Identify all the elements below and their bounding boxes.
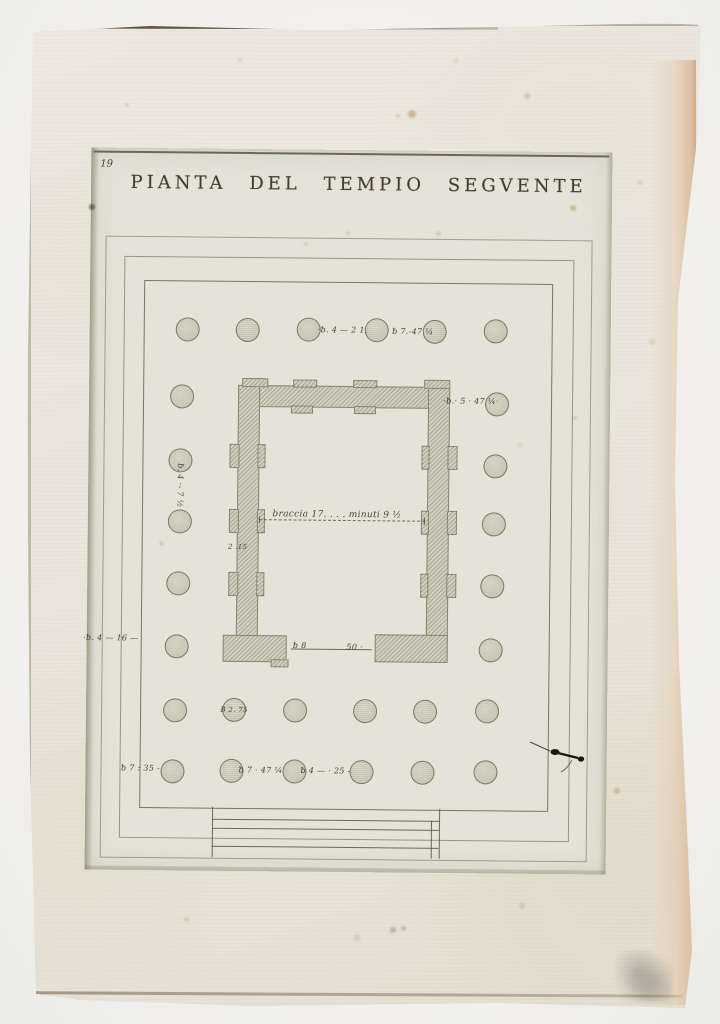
cella-wall bbox=[256, 572, 264, 596]
paper-right-deckle-edge bbox=[650, 60, 696, 1005]
measurement-annotation: ·ƀ.· 5 · 47 ¼· bbox=[443, 396, 498, 406]
column-circle bbox=[353, 699, 377, 723]
cella-wall bbox=[242, 378, 268, 387]
measurement-annotation: B 2. 75 bbox=[220, 706, 247, 714]
cella-wall bbox=[375, 634, 448, 663]
column-circle bbox=[170, 384, 194, 408]
measurement-annotation: ƀ 7 : 35 - bbox=[121, 763, 160, 772]
column-circle bbox=[165, 634, 189, 658]
foxing-spot bbox=[401, 926, 406, 931]
column-circle bbox=[349, 760, 373, 784]
column-circle bbox=[283, 698, 307, 722]
cella-wall bbox=[447, 446, 457, 470]
measurement-annotation: ƀ 7.-47 ¼ bbox=[392, 327, 433, 336]
foxing-spot bbox=[638, 180, 643, 185]
cella-wall bbox=[424, 380, 450, 389]
foxing-spot bbox=[519, 903, 525, 909]
scan-background: 19 PIANTA DEL TEMPIO SEGVENTE ·ƀ. 4 — 2 … bbox=[0, 0, 720, 1024]
measurement-annotation: ƀ. 4 ·- 7 ½ bbox=[176, 463, 185, 507]
measurement-annotation: ·ƀ. 4 — 2 1. bbox=[318, 325, 368, 334]
cella-wall bbox=[353, 380, 377, 388]
foxing-spot bbox=[408, 110, 416, 118]
plate-mark bbox=[93, 151, 609, 158]
cella-wall bbox=[223, 635, 287, 663]
column-circle bbox=[176, 317, 200, 341]
foxing-spot bbox=[453, 58, 458, 63]
foxing-spot bbox=[396, 114, 400, 118]
foxing-spot bbox=[573, 416, 577, 420]
foxing-spot bbox=[125, 103, 129, 107]
foxing-spot bbox=[518, 443, 522, 447]
foxing-spot bbox=[160, 542, 163, 545]
cella-wall bbox=[291, 405, 313, 413]
column-circle bbox=[160, 759, 184, 783]
steps-edge bbox=[431, 821, 433, 859]
foxing-spot bbox=[554, 179, 558, 183]
foxing-spot bbox=[390, 927, 396, 933]
foxing-spot bbox=[238, 58, 242, 62]
cella-wall bbox=[228, 572, 238, 596]
cella-wall bbox=[447, 511, 457, 535]
cella-wall bbox=[270, 659, 288, 667]
cella-wall bbox=[229, 509, 239, 533]
ink-blemish bbox=[522, 733, 600, 779]
column-circle bbox=[365, 318, 389, 342]
foxing-spot bbox=[436, 231, 441, 236]
paper-top-edge bbox=[495, 24, 698, 26]
foxing-spot bbox=[524, 93, 530, 99]
dashed-line-tick bbox=[424, 518, 426, 525]
column-circle bbox=[163, 698, 187, 722]
measurement-annotation: 2 .15 bbox=[228, 543, 247, 551]
cella-wall bbox=[257, 444, 265, 468]
measurement-annotation: ƀ 4 — · 25 - bbox=[300, 766, 350, 775]
measurement-annotation: braccia 17. . . . minuti 9 ½ bbox=[272, 509, 401, 520]
column-circle bbox=[475, 699, 499, 723]
paper-left-edge bbox=[28, 60, 31, 980]
foxing-spot bbox=[649, 339, 655, 345]
measurement-annotation: ·ƀ. 4 — 16 — bbox=[83, 633, 138, 643]
page-number: 19 bbox=[100, 159, 113, 170]
charcoal-smudge bbox=[616, 950, 672, 1002]
cella-wall bbox=[293, 379, 317, 387]
cella-wall bbox=[229, 444, 239, 468]
foxing-spot bbox=[89, 204, 95, 210]
cella-wall bbox=[238, 385, 450, 409]
column-circle bbox=[480, 574, 504, 598]
foxing-spot bbox=[304, 242, 308, 246]
foxing-spot bbox=[346, 231, 350, 235]
measurement-annotation: ƀ 7 · 47 ¼ bbox=[239, 765, 283, 774]
foxing-spot bbox=[614, 788, 620, 794]
column-circle bbox=[473, 760, 497, 784]
measurement-annotation: 50 · bbox=[346, 642, 363, 651]
cella-wall bbox=[421, 446, 429, 470]
cella-wall bbox=[446, 574, 456, 598]
dashed-line-tick bbox=[259, 516, 261, 523]
border-rectangle bbox=[139, 280, 553, 812]
column-circle bbox=[484, 319, 508, 343]
measurement-annotation: ƀ 8 bbox=[293, 641, 307, 650]
foxing-spot bbox=[354, 935, 360, 941]
column-circle bbox=[482, 512, 506, 536]
column-circle bbox=[168, 509, 192, 533]
column-circle bbox=[166, 571, 190, 595]
paper-sheet: 19 PIANTA DEL TEMPIO SEGVENTE ·ƀ. 4 — 2 … bbox=[0, 0, 720, 1024]
column-circle bbox=[410, 761, 434, 785]
cella-wall bbox=[354, 406, 376, 414]
column-circle bbox=[413, 700, 437, 724]
column-circle bbox=[479, 638, 503, 662]
page-title: PIANTA DEL TEMPIO SEGVENTE bbox=[91, 172, 612, 198]
foxing-spot bbox=[570, 205, 576, 211]
column-circle bbox=[236, 318, 260, 342]
column-circle bbox=[483, 454, 507, 478]
foxing-spot bbox=[184, 917, 189, 922]
cella-wall bbox=[420, 574, 428, 598]
